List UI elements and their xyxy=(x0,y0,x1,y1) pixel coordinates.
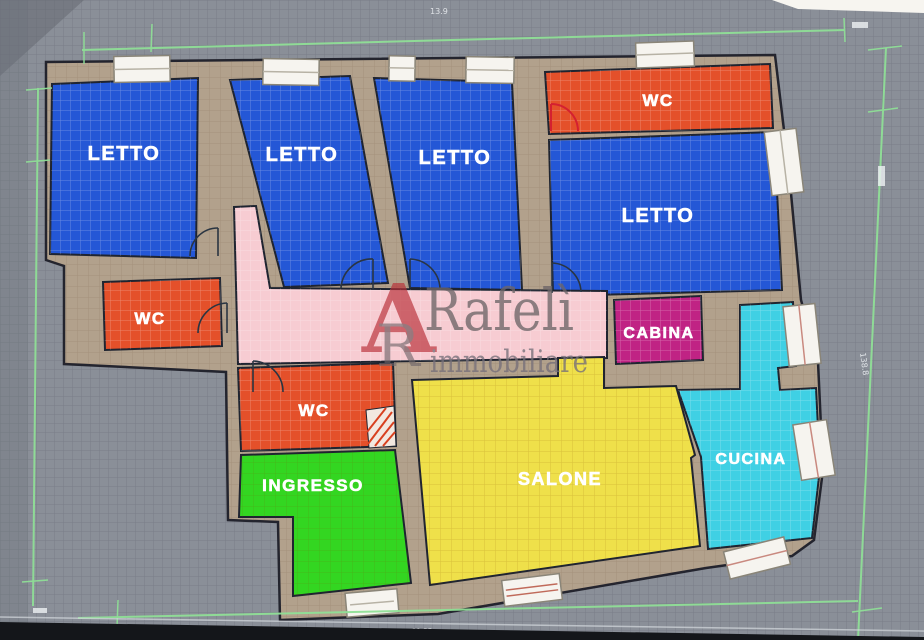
photo-edge-shade xyxy=(0,0,28,640)
room-ingresso-label: INGRESSO xyxy=(262,476,364,495)
room-letto-2-label: LETTO xyxy=(266,144,339,166)
window-letto3-right xyxy=(466,57,514,84)
window-letto1 xyxy=(114,56,170,83)
room-salone-label: SALONE xyxy=(518,469,602,489)
floor-plan-canvas: LETTO LETTO LETTO LETTO WC WC WC CABINA … xyxy=(0,0,924,640)
room-letto-4-label: LETTO xyxy=(622,205,695,227)
room-wc-top-label: WC xyxy=(642,91,673,110)
floor-plan-photo: LETTO LETTO LETTO LETTO WC WC WC CABINA … xyxy=(0,0,924,640)
window-letto3-left xyxy=(389,56,415,81)
watermark-logo-r: R xyxy=(376,312,422,380)
dimension-mark xyxy=(852,22,868,28)
dimension-label-top: 13.9 xyxy=(430,7,448,16)
room-cabina-label: CABINA xyxy=(623,325,694,342)
watermark-name: Rafelì xyxy=(424,276,574,344)
watermark: A R Rafelì immobiliare xyxy=(361,264,588,380)
room-letto-1-label: LETTO xyxy=(88,143,161,165)
room-wc-left-label: WC xyxy=(134,309,165,328)
window-wc-top xyxy=(636,41,695,68)
room-cucina-label: CUCINA xyxy=(715,451,786,468)
window-letto4 xyxy=(764,128,804,195)
room-letto-3-label: LETTO xyxy=(419,147,492,169)
dimension-mark xyxy=(878,166,885,186)
dimension-mark xyxy=(33,608,47,613)
watermark-tagline: immobiliare xyxy=(430,344,588,380)
wc-mid-hatch xyxy=(366,406,396,448)
window-cucina-upper xyxy=(783,303,821,366)
room-letto-1-tiles xyxy=(50,78,198,258)
window-letto2 xyxy=(263,59,319,86)
room-wc-mid-label: WC xyxy=(298,401,329,420)
